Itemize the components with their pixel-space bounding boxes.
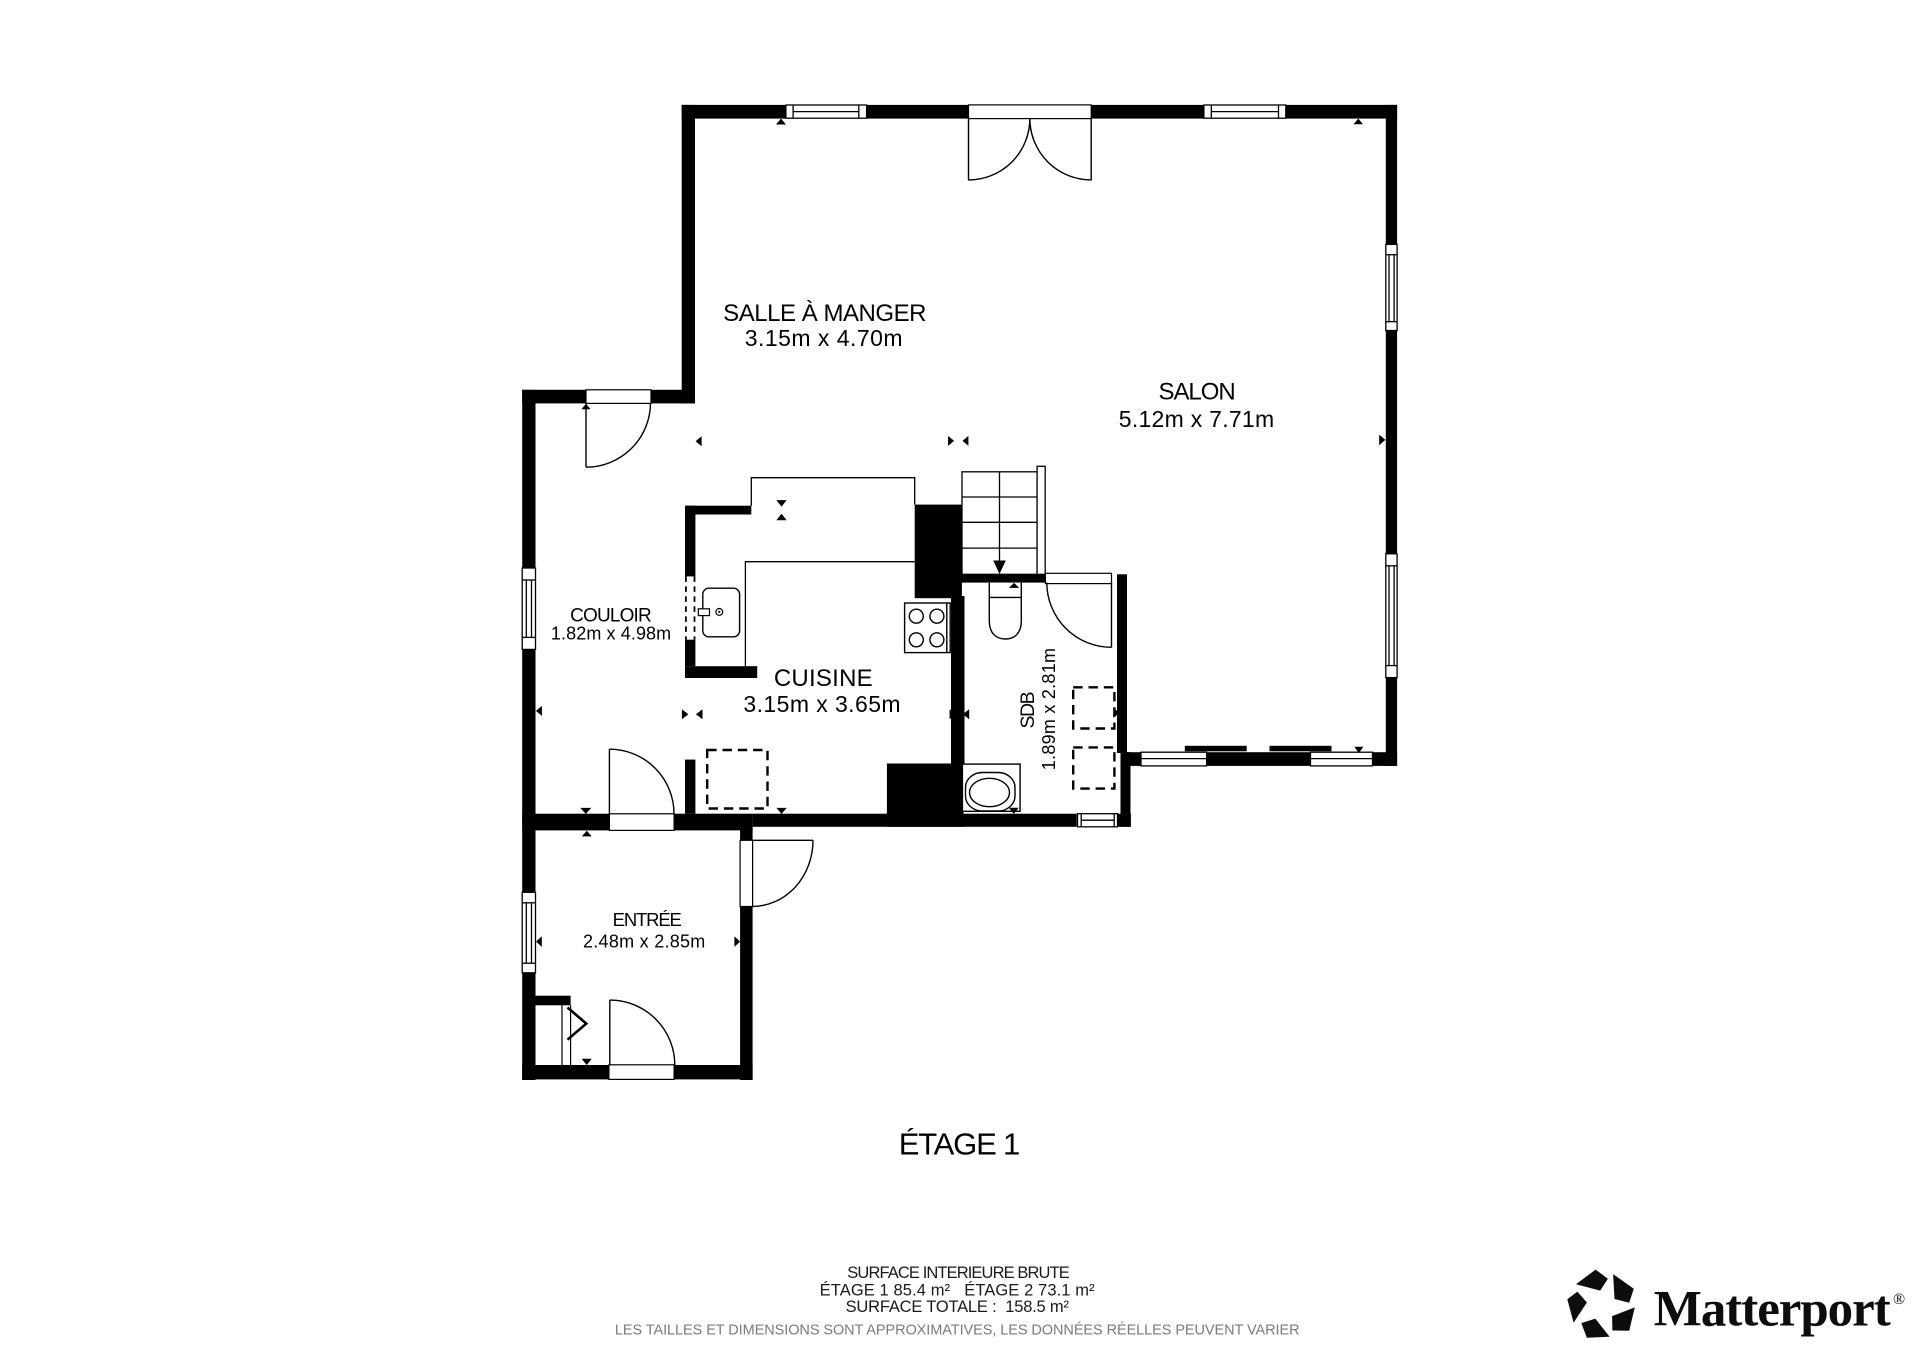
svg-text:SALON: SALON: [1158, 378, 1234, 405]
svg-text:SURFACE INTERIEURE BRUTE: SURFACE INTERIEURE BRUTE: [847, 1264, 1069, 1282]
svg-text:SALLE À MANGER: SALLE À MANGER: [723, 300, 926, 327]
svg-text:SDB: SDB: [1017, 692, 1039, 728]
svg-text:Matterport: Matterport: [1654, 1281, 1891, 1337]
svg-text:1.89m x 2.81m: 1.89m x 2.81m: [1039, 648, 1059, 770]
svg-text:®: ®: [1893, 1291, 1905, 1308]
svg-text:LES TAILLES ET DIMENSIONS SONT: LES TAILLES ET DIMENSIONS SONT APPROXIMA…: [615, 1321, 1300, 1338]
svg-text:5.12m x 7.71m: 5.12m x 7.71m: [1119, 406, 1275, 432]
svg-text:ÉTAGE 1: ÉTAGE 1: [899, 1127, 1019, 1162]
svg-text:ÉTAGE 1 85.4 m² ÉTAGE 2 73.1: ÉTAGE 1 85.4 m² ÉTAGE 2 73.1 m²: [820, 1281, 1095, 1300]
svg-text:ENTRÉE: ENTRÉE: [613, 909, 682, 930]
svg-text:2.48m x 2.85m: 2.48m x 2.85m: [583, 931, 706, 951]
svg-text:CUISINE: CUISINE: [774, 665, 873, 692]
svg-text:1.82m x 4.98m: 1.82m x 4.98m: [551, 623, 671, 643]
svg-text:SURFACE TOTALE : 158.5 m²: SURFACE TOTALE : 158.5 m²: [846, 1298, 1070, 1316]
svg-text:3.15m x 4.70m: 3.15m x 4.70m: [745, 325, 903, 351]
svg-text:3.15m x 3.65m: 3.15m x 3.65m: [743, 691, 901, 717]
